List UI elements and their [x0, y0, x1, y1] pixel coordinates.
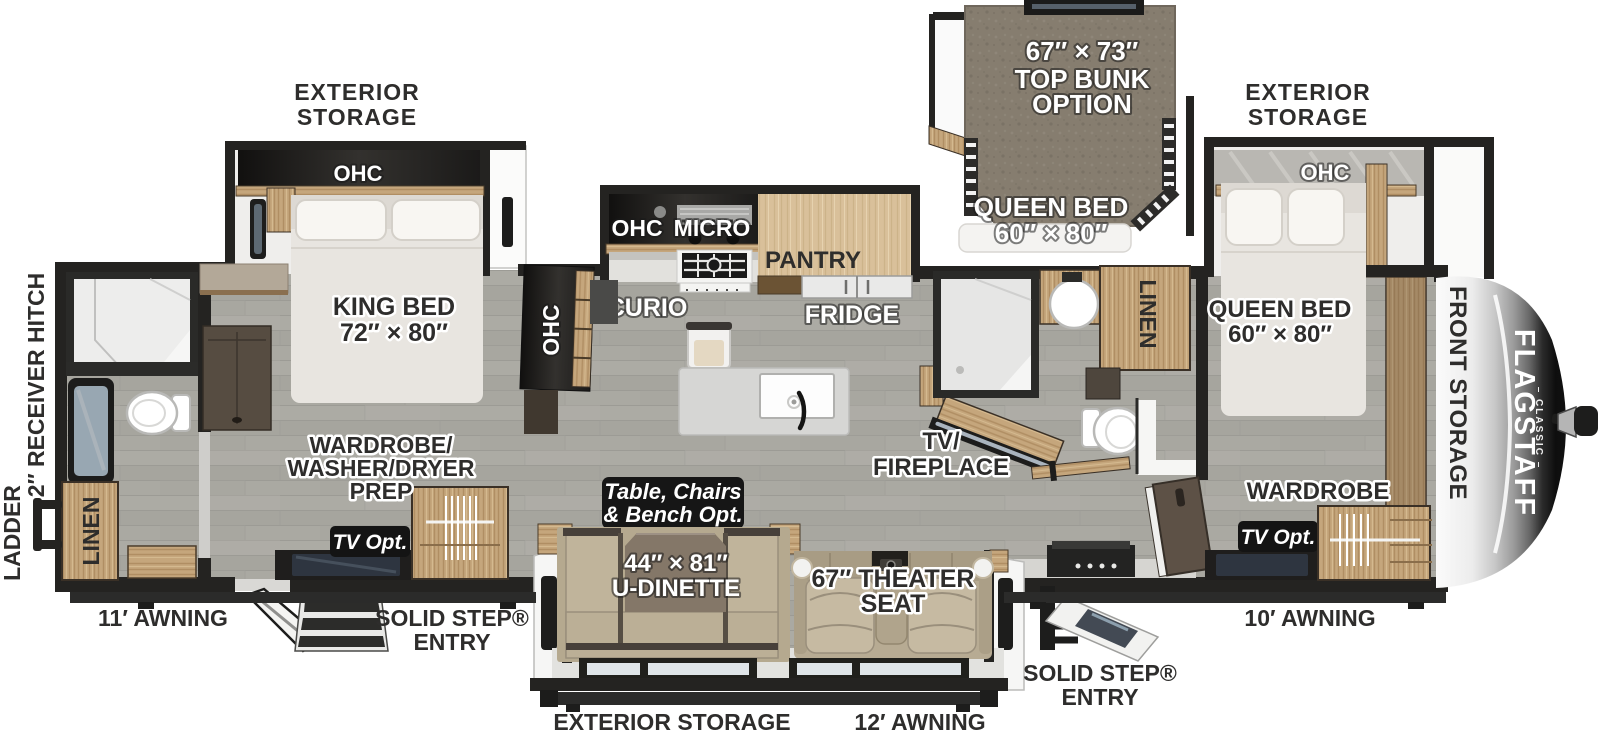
svg-text:ENTRY: ENTRY — [413, 629, 490, 655]
svg-text:2″ RECEIVER HITCH: 2″ RECEIVER HITCH — [23, 273, 49, 497]
svg-text:67″ THEATER: 67″ THEATER — [812, 565, 975, 593]
svg-text:12′ AWNING: 12′ AWNING — [854, 709, 985, 734]
svg-text:PANTRY: PANTRY — [765, 247, 861, 274]
svg-text:60″ × 80″: 60″ × 80″ — [1228, 321, 1332, 348]
svg-text:QUEEN BED: QUEEN BED — [1209, 296, 1352, 323]
svg-text:44″ × 81″: 44″ × 81″ — [624, 550, 728, 577]
svg-text:PREP: PREP — [350, 478, 413, 504]
svg-text:EXTERIOR: EXTERIOR — [294, 79, 420, 105]
svg-text:KING BED: KING BED — [333, 293, 455, 321]
svg-text:Table, Chairs: Table, Chairs — [604, 479, 741, 504]
svg-text:LINEN: LINEN — [78, 497, 104, 566]
svg-text:LADDER: LADDER — [0, 485, 25, 581]
svg-text:& Bench Opt.: & Bench Opt. — [603, 502, 742, 527]
svg-text:TV/: TV/ — [922, 428, 960, 455]
svg-text:OHC: OHC — [334, 161, 383, 186]
svg-text:OHC: OHC — [538, 304, 564, 355]
svg-text:STORAGE: STORAGE — [1248, 104, 1368, 130]
svg-text:MICRO: MICRO — [674, 215, 751, 241]
svg-text:– CLASSIC –: – CLASSIC – — [1533, 387, 1544, 470]
svg-text:EXTERIOR: EXTERIOR — [1245, 79, 1371, 105]
svg-text:SOLID STEP®: SOLID STEP® — [1023, 660, 1177, 686]
svg-text:SEAT: SEAT — [861, 590, 926, 618]
svg-text:67″ × 73″: 67″ × 73″ — [1026, 36, 1138, 66]
svg-text:CURIO: CURIO — [607, 294, 688, 322]
svg-text:EXTERIOR STORAGE: EXTERIOR STORAGE — [553, 709, 790, 734]
svg-text:60″ × 80″: 60″ × 80″ — [995, 218, 1107, 248]
svg-text:WARDROBE: WARDROBE — [1247, 478, 1390, 505]
svg-text:FIREPLACE: FIREPLACE — [873, 454, 1009, 481]
svg-text:U-DINETTE: U-DINETTE — [612, 575, 740, 602]
svg-text:TV Opt.: TV Opt. — [1241, 526, 1316, 549]
svg-text:72″ × 80″: 72″ × 80″ — [340, 319, 448, 347]
svg-text:OHC: OHC — [1301, 160, 1350, 185]
svg-text:11′ AWNING: 11′ AWNING — [98, 605, 228, 631]
svg-text:SOLID STEP®: SOLID STEP® — [375, 605, 529, 631]
svg-text:ENTRY: ENTRY — [1061, 684, 1138, 710]
svg-text:FRIDGE: FRIDGE — [805, 301, 899, 329]
svg-text:TV Opt.: TV Opt. — [333, 531, 408, 554]
svg-text:FRONT STORAGE: FRONT STORAGE — [1444, 286, 1471, 500]
svg-text:STORAGE: STORAGE — [297, 104, 417, 130]
svg-text:OPTION: OPTION — [1032, 89, 1132, 119]
svg-text:OHC: OHC — [611, 215, 662, 241]
svg-text:10′ AWNING: 10′ AWNING — [1244, 605, 1375, 631]
svg-text:LINEN: LINEN — [1135, 280, 1161, 349]
